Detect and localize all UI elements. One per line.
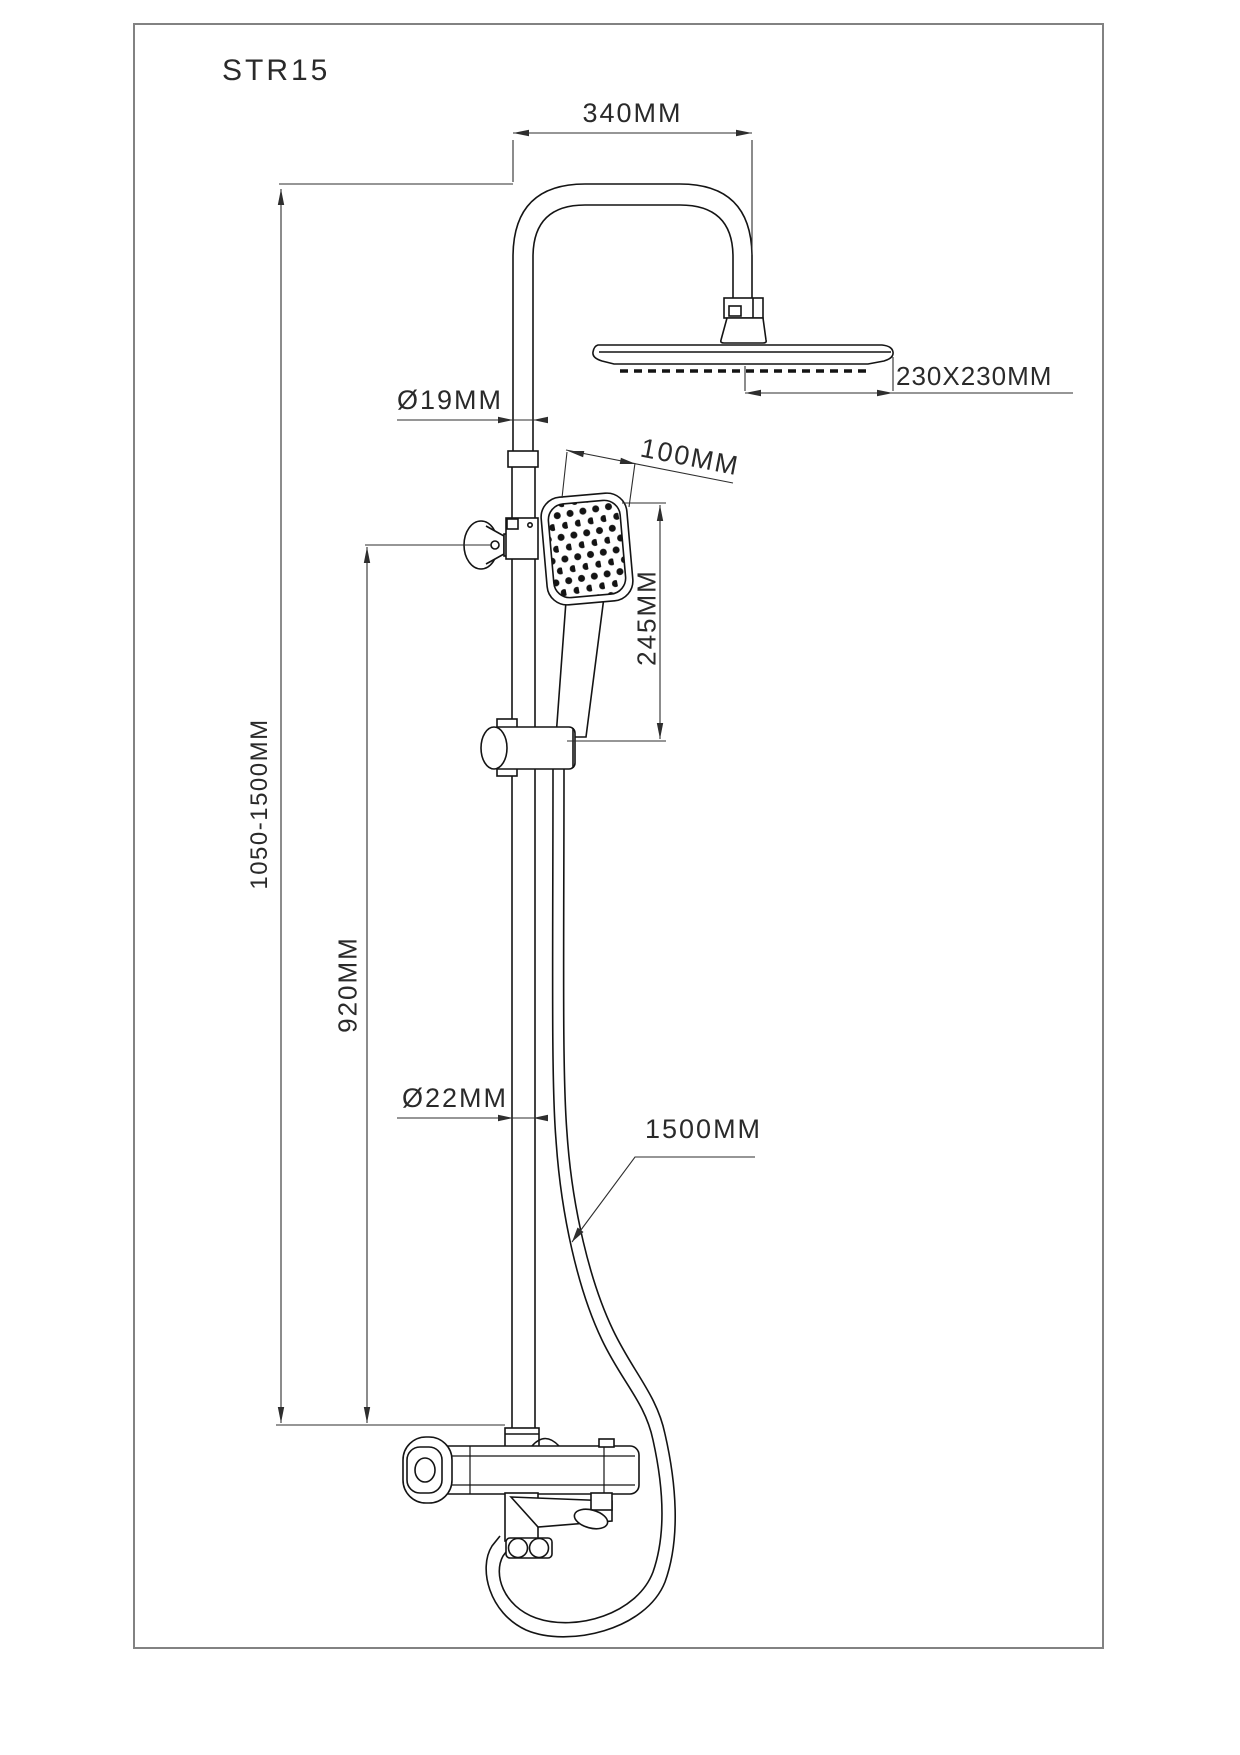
- overhead-size-label: 230X230MM: [896, 361, 1052, 392]
- drawing-sheet: STR15 340MM 230X230MM Ø19MM 100MM 245MM …: [0, 0, 1240, 1755]
- top-width-label: 340MM: [513, 98, 752, 129]
- hose-length-leader: [572, 1157, 755, 1242]
- dimension-lines: [276, 133, 1073, 1425]
- hose-length-label: 1500MM: [645, 1114, 762, 1145]
- shower-system-drawing: [0, 0, 1240, 1755]
- hand-shower-handle: [556, 597, 604, 737]
- head-mount-cone: [721, 318, 766, 343]
- mixer-valve: [403, 1428, 639, 1558]
- dimension-arrows: [278, 130, 893, 1423]
- overall-height-label: 1050-1500MM: [246, 694, 274, 914]
- slider-holder: [481, 719, 575, 776]
- hand-shower: [539, 491, 634, 606]
- pipe-union: [508, 451, 538, 467]
- handshower-length-label: 245MM: [632, 553, 663, 683]
- overhead-shower-head: [593, 298, 893, 371]
- riser-pipe: [508, 184, 752, 1447]
- top-width-dim: [513, 133, 752, 255]
- model-number: STR15: [222, 54, 330, 88]
- rail-diameter-label: Ø22MM: [402, 1083, 508, 1114]
- overhead-arm: [513, 184, 752, 455]
- upper-pipe-diameter-label: Ø19MM: [397, 385, 503, 416]
- rail-height-label: 920MM: [333, 920, 364, 1050]
- wall-bracket: [464, 518, 538, 569]
